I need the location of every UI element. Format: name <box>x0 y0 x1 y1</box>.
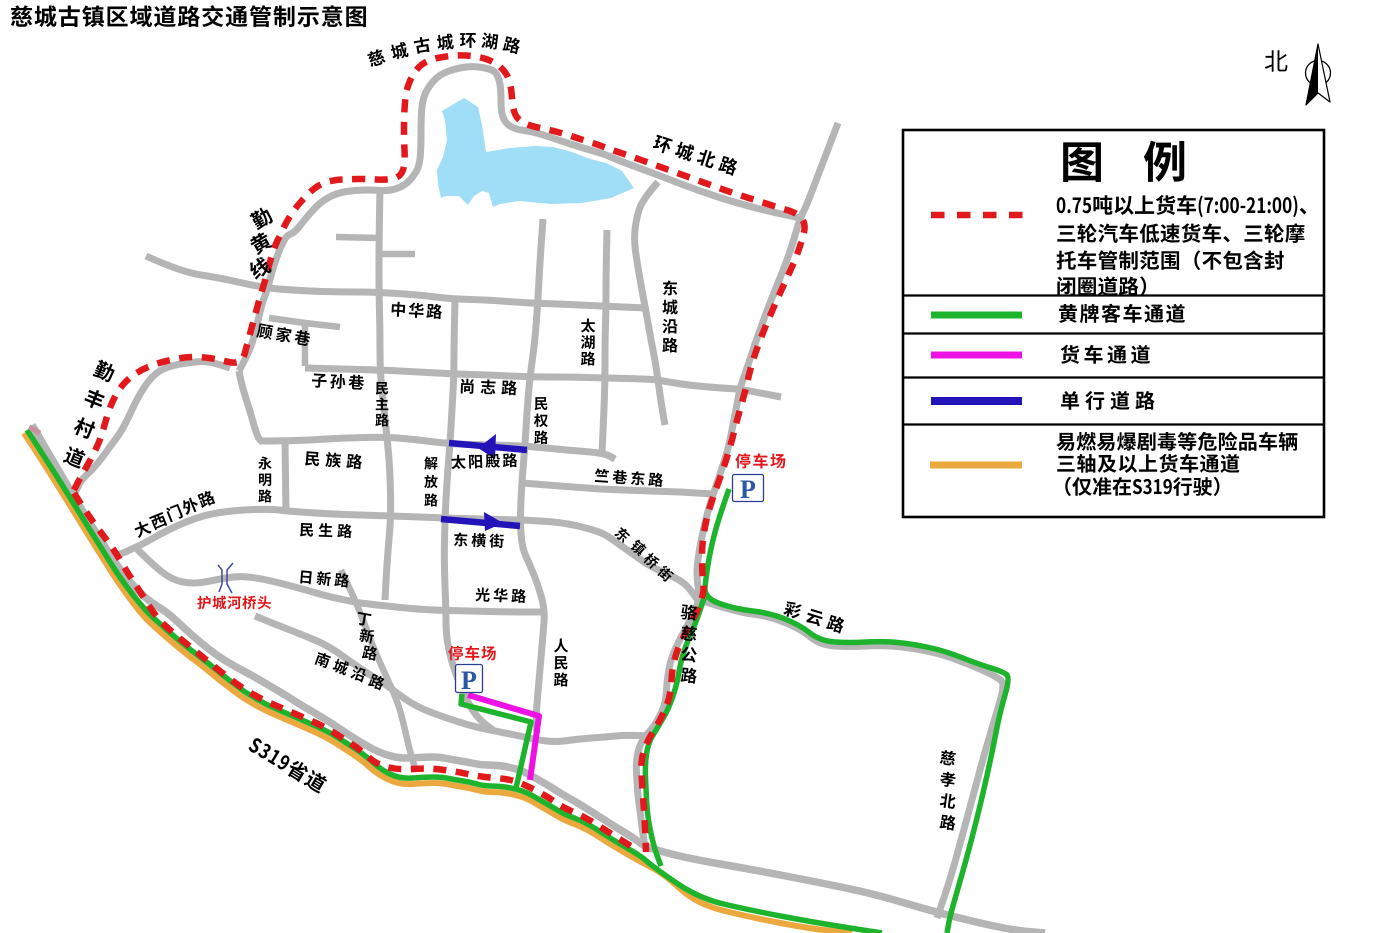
svg-text:P: P <box>461 666 477 695</box>
svg-text:P: P <box>740 475 756 504</box>
